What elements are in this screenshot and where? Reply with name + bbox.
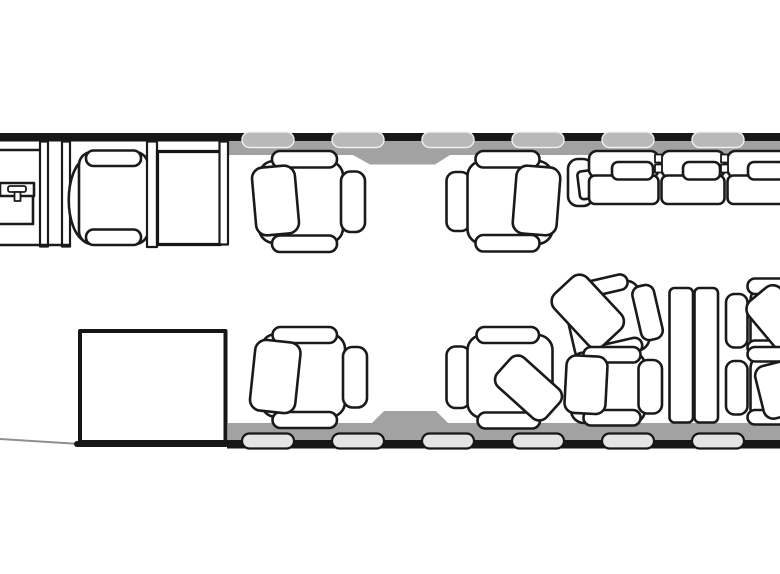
- conference-table-leaf-right: [695, 288, 719, 423]
- window-bottom-2: [332, 434, 384, 449]
- cabin-floorplan-svg: [0, 0, 780, 574]
- seat-1-arm-bottom: [272, 236, 337, 253]
- cabin-floorplan: [0, 0, 780, 574]
- divan-pillow-3: [748, 162, 780, 180]
- crew-seat-arm-top: [86, 151, 141, 167]
- divan-hinge-2a: [721, 155, 728, 163]
- divan-pillow-2: [683, 162, 720, 180]
- seat-3-arm-bottom: [273, 412, 338, 428]
- seat-8-side-cushion: [726, 361, 748, 415]
- window-top-6: [692, 132, 744, 148]
- divan-hinge-1a: [655, 155, 662, 163]
- window-top-1: [242, 132, 294, 148]
- seat-4-arm-top: [477, 327, 540, 343]
- window-top-2: [332, 132, 384, 148]
- conference-table-leaf-left: [670, 288, 694, 423]
- window-bottom-1: [242, 434, 294, 449]
- window-top-4: [512, 132, 564, 148]
- window-bottom-5: [602, 434, 654, 449]
- seat-7-side-cushion: [726, 294, 748, 348]
- seat-3-pillow: [249, 339, 302, 414]
- window-top-3: [422, 132, 474, 148]
- seat-2-pillow: [512, 165, 561, 236]
- background: [0, 0, 780, 574]
- window-bottom-4: [512, 434, 564, 449]
- seat-1-pillow: [251, 165, 300, 236]
- fwd-closet: [158, 152, 221, 245]
- seat-6-side-cushion: [639, 360, 663, 414]
- entry-cabinet: [80, 331, 226, 442]
- hull-top: [0, 133, 780, 142]
- fwd-wall-mid: [147, 142, 157, 248]
- divan-hinge-2b: [721, 165, 728, 173]
- divan-hinge-1b: [655, 165, 662, 173]
- window-bottom-6: [692, 434, 744, 449]
- seat-2-arm-bottom: [476, 235, 540, 252]
- fwd-wall-a: [40, 142, 48, 247]
- fwd-wall-right: [220, 142, 229, 245]
- seat-8-arm-top: [748, 347, 780, 362]
- divan-pillow-1: [612, 162, 653, 180]
- seat-1-side-cushion: [341, 172, 365, 233]
- window-bottom-3: [422, 434, 474, 449]
- seat-3-side-cushion: [343, 347, 367, 408]
- window-top-5: [602, 132, 654, 148]
- galley-handle-stem: [15, 192, 21, 201]
- crew-seat-arm-bottom: [86, 230, 141, 246]
- seat-6-pillow: [564, 355, 608, 415]
